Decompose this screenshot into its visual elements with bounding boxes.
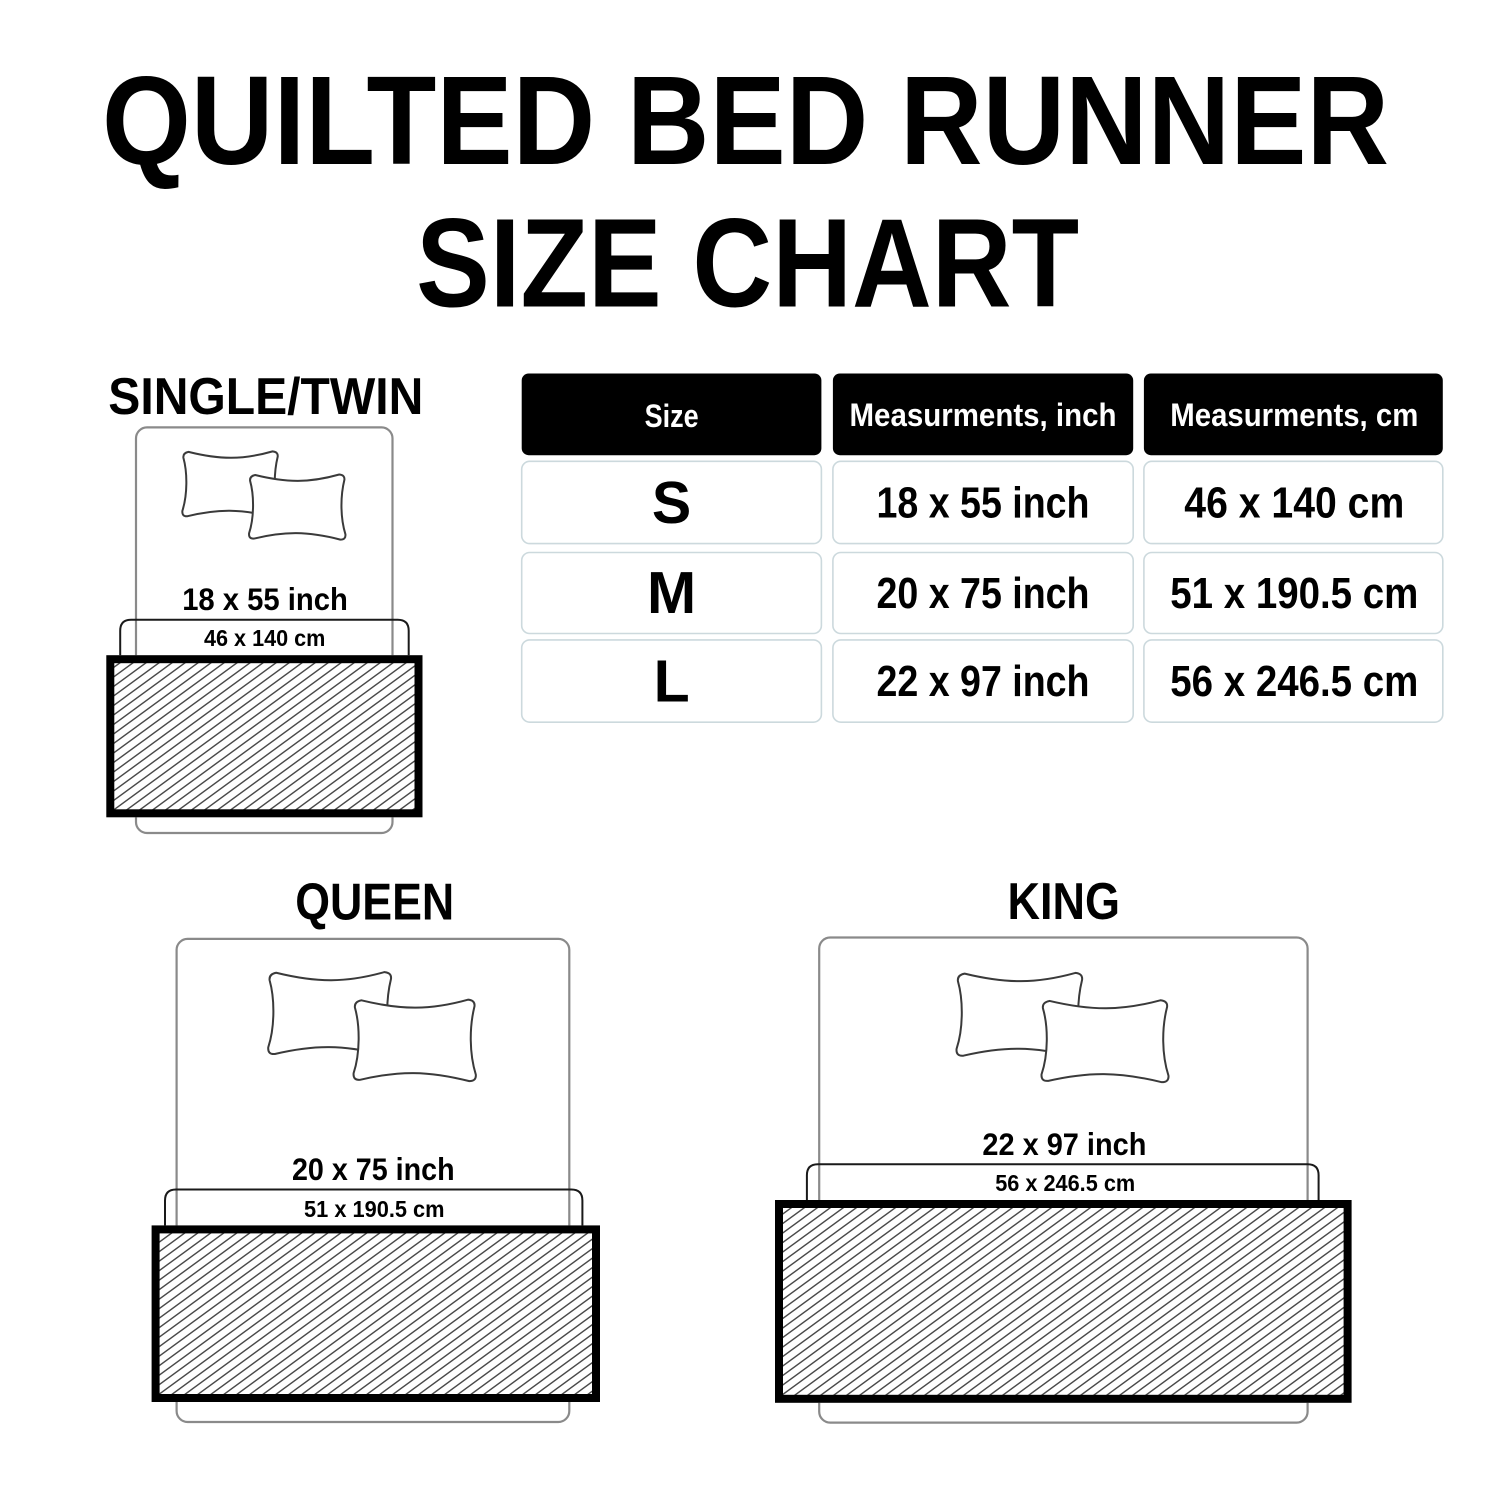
svg-text:56 x 246.5 cm: 56 x 246.5 cm [995, 1170, 1135, 1196]
svg-text:46 x 140 cm: 46 x 140 cm [204, 625, 325, 651]
svg-text:22 x 97 inch: 22 x 97 inch [982, 1126, 1146, 1162]
svg-text:SIZE CHART: SIZE CHART [416, 193, 1079, 334]
svg-text:SINGLE/TWIN: SINGLE/TWIN [108, 368, 423, 426]
svg-text:L: L [654, 649, 690, 715]
svg-text:56 x 246.5 cm: 56 x 246.5 cm [1170, 657, 1418, 706]
svg-text:Measurments, cm: Measurments, cm [1170, 397, 1418, 433]
svg-text:51 x 190.5 cm: 51 x 190.5 cm [1170, 569, 1418, 618]
svg-text:18 x 55 inch: 18 x 55 inch [877, 479, 1090, 528]
svg-text:M: M [647, 560, 696, 626]
svg-text:20 x 75 inch: 20 x 75 inch [292, 1151, 455, 1187]
svg-text:QUEEN: QUEEN [295, 873, 454, 931]
svg-text:S: S [652, 470, 691, 536]
svg-text:Size: Size [645, 398, 699, 434]
svg-text:KING: KING [1008, 873, 1121, 931]
svg-text:Measurments, inch: Measurments, inch [850, 397, 1117, 433]
svg-text:QUILTED BED RUNNER: QUILTED BED RUNNER [102, 50, 1389, 191]
svg-text:20 x 75 inch: 20 x 75 inch [877, 569, 1090, 618]
svg-text:46 x 140 cm: 46 x 140 cm [1184, 479, 1404, 528]
svg-text:22 x 97 inch: 22 x 97 inch [877, 657, 1090, 706]
svg-text:51 x 190.5 cm: 51 x 190.5 cm [304, 1196, 445, 1222]
svg-text:18 x 55 inch: 18 x 55 inch [182, 581, 348, 617]
